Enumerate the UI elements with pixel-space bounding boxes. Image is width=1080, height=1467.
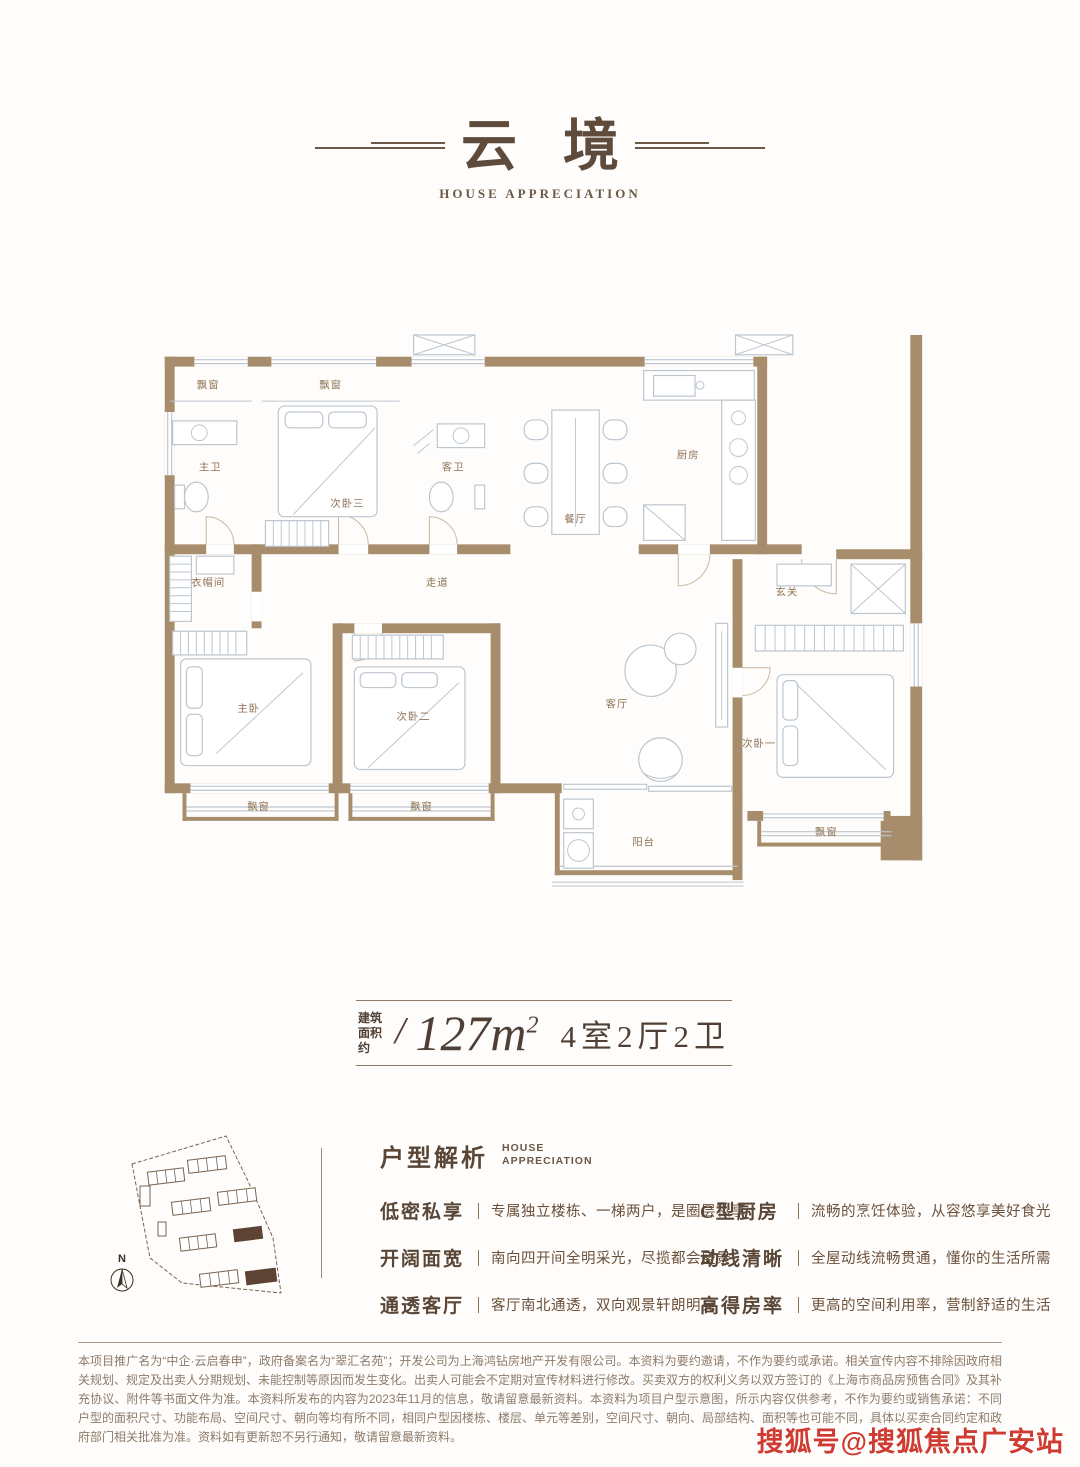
features-left-column: 低密私享 专属独立楼栋、一梯两户，是圈层私享 开阔面宽 南向四开间全明采光，尽揽…	[380, 1197, 746, 1318]
analysis-subtitle-line1: HOUSE	[502, 1142, 593, 1155]
room-label: 次卧一	[742, 737, 776, 750]
room-label: 飘窗	[197, 378, 220, 391]
feature-row: 开阔面宽 南向四开间全明采光，尽揽都会盛景	[380, 1244, 746, 1271]
feature-divider	[798, 1203, 799, 1219]
spec-row: 建筑 面积约 / 127m2 4室2厅2卫	[356, 1001, 732, 1065]
furniture	[170, 371, 906, 869]
compass-icon: N	[111, 1253, 133, 1291]
master-bath-fixtures	[170, 401, 252, 512]
compass-label: N	[118, 1253, 126, 1265]
spec-area-value: 127m	[415, 1005, 526, 1061]
analysis-section: 户型解析 HOUSE APPRECIATION 低密私享 专属独立楼栋、一梯两户…	[380, 1138, 1020, 1327]
kitchen-fixtures	[644, 371, 756, 541]
room-label: 阳台	[632, 836, 655, 849]
spec-rule-bottom	[356, 1065, 732, 1066]
feature-label: 开阔面宽	[380, 1244, 466, 1271]
feature-label: 动线清晰	[700, 1244, 786, 1271]
room-label: 衣帽间	[191, 576, 225, 589]
room-label: 飘窗	[815, 826, 838, 839]
analysis-title-row: 户型解析 HOUSE APPRECIATION	[380, 1138, 1020, 1173]
feature-row: 高得房率 更高的空间利用率，营制舒适的生活	[700, 1291, 1051, 1318]
room-label: 飘窗	[247, 800, 270, 813]
area-spec: 建筑 面积约 / 127m2 4室2厅2卫	[356, 1000, 732, 1066]
page-title: 云 境	[461, 118, 619, 177]
feature-label: 低密私享	[380, 1197, 466, 1224]
feature-desc: 全屋动线流畅贯通，懂你的生活所需	[811, 1247, 1051, 1268]
bedroom1-furniture	[755, 625, 903, 777]
feature-divider	[478, 1250, 479, 1266]
page-subtitle: HOUSE APPRECIATION	[0, 186, 1080, 202]
feature-row: 低密私享 专属独立楼栋、一梯两户，是圈层私享	[380, 1197, 746, 1224]
spec-prefix: 建筑 面积约	[358, 1011, 385, 1056]
spec-prefix-line1: 建筑	[358, 1011, 385, 1026]
title-row: 云 境	[0, 118, 1080, 177]
feature-row: 动线清晰 全屋动线流畅贯通，懂你的生活所需	[700, 1244, 1051, 1271]
bedroom3-furniture	[262, 401, 400, 546]
room-label: 主卫	[199, 461, 222, 473]
analysis-subtitle-line2: APPRECIATION	[502, 1155, 593, 1168]
room-label: 餐厅	[564, 513, 587, 526]
room-label: 飘窗	[319, 378, 342, 391]
spec-area: 127m2	[415, 1008, 538, 1058]
siteplan: N	[100, 1126, 328, 1312]
feature-desc: 更高的空间利用率，营制舒适的生活	[811, 1294, 1051, 1315]
feature-divider	[798, 1250, 799, 1266]
title-char-2: 境	[563, 118, 619, 177]
disclaimer-rule	[78, 1342, 1002, 1343]
room-label: 玄关	[776, 586, 799, 599]
features-right-column: C型厨房 流畅的烹饪体验，从容悠享美好食光 动线清晰 全屋动线流畅贯通，懂你的生…	[700, 1197, 1051, 1318]
feature-divider	[478, 1203, 479, 1219]
room-label: 客卫	[442, 460, 465, 473]
room-label: 走道	[426, 576, 449, 589]
room-label: 主卧	[237, 702, 260, 715]
feature-desc: 南向四开间全明采光，尽揽都会盛景	[491, 1247, 731, 1268]
section-divider	[321, 1148, 322, 1278]
analysis-title: 户型解析	[380, 1138, 488, 1173]
feature-row: 通透客厅 客厅南北通透，双向观景轩朗明亮	[380, 1291, 746, 1318]
feature-row: C型厨房 流畅的烹饪体验，从容悠享美好食光	[700, 1197, 1051, 1224]
feature-divider	[798, 1297, 799, 1313]
title-char-1: 云	[461, 118, 517, 177]
room-label: 飘窗	[410, 800, 433, 813]
watermark: 搜狐号@搜狐焦点广安站	[757, 1420, 1064, 1459]
master-bedroom-furniture	[173, 631, 311, 765]
features: 低密私享 专属独立楼栋、一梯两户，是圈层私享 开阔面宽 南向四开间全明采光，尽揽…	[380, 1197, 1020, 1327]
floorplan: 飘窗飘窗主卫次卧三客卫餐厅厨房衣帽间走道玄关主卧次卧二客厅次卧一阳台飘窗飘窗飘窗	[145, 326, 935, 896]
feature-label: 通透客厅	[380, 1291, 466, 1318]
page: 云 境 HOUSE APPRECIATION	[0, 0, 1080, 1467]
feature-desc: 客厅南北通透，双向观景轩朗明亮	[491, 1294, 716, 1315]
living-room-furniture	[625, 623, 728, 781]
spec-prefix-line2: 面积约	[358, 1026, 385, 1056]
ornament-right-icon	[635, 136, 765, 158]
ac-platforms	[414, 335, 793, 355]
spec-area-sup: 2	[527, 1012, 539, 1038]
room-label: 客厅	[606, 697, 629, 710]
room-label: 次卧三	[330, 497, 364, 510]
header: 云 境 HOUSE APPRECIATION	[0, 118, 1080, 202]
analysis-subtitle: HOUSE APPRECIATION	[502, 1138, 593, 1168]
bedroom2-furniture	[352, 635, 465, 769]
feature-label: C型厨房	[700, 1197, 786, 1224]
ornament-left-icon	[315, 136, 445, 158]
site-buildings	[140, 1156, 277, 1288]
feature-divider	[478, 1297, 479, 1313]
feature-desc: 流畅的烹饪体验，从容悠享美好食光	[811, 1200, 1051, 1221]
balcony-fixtures	[564, 799, 594, 868]
spec-layout: 4室2厅2卫	[561, 1011, 731, 1056]
spec-slash: /	[395, 1009, 406, 1053]
room-label: 厨房	[677, 448, 700, 461]
feature-label: 高得房率	[700, 1291, 786, 1318]
room-label: 次卧二	[397, 710, 431, 723]
